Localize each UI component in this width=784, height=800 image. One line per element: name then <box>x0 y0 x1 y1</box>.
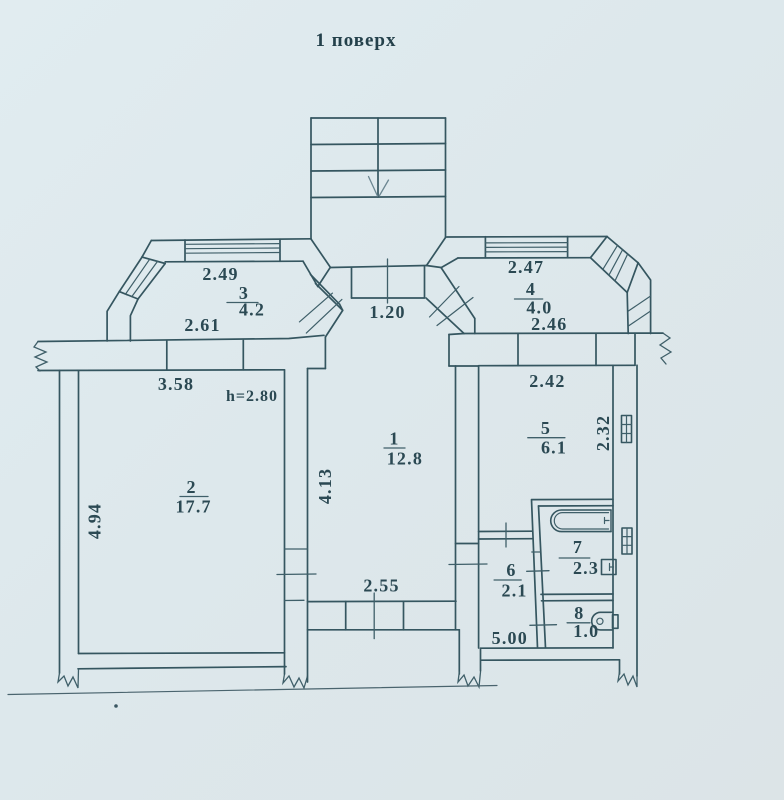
svg-text:4.94: 4.94 <box>85 503 105 539</box>
svg-text:4.2: 4.2 <box>239 300 265 320</box>
svg-text:12.8: 12.8 <box>387 449 423 469</box>
svg-text:6: 6 <box>506 560 516 580</box>
svg-text:4.13: 4.13 <box>315 468 335 504</box>
svg-text:5: 5 <box>541 418 551 438</box>
svg-text:2.49: 2.49 <box>202 264 238 284</box>
svg-text:2.55: 2.55 <box>363 576 399 596</box>
svg-text:2.3: 2.3 <box>573 558 599 578</box>
svg-text:2.47: 2.47 <box>508 257 544 277</box>
svg-text:4: 4 <box>526 279 536 299</box>
svg-text:2.61: 2.61 <box>184 315 220 335</box>
svg-text:7: 7 <box>573 537 583 557</box>
svg-text:1.0: 1.0 <box>573 621 599 641</box>
svg-text:17.7: 17.7 <box>175 497 211 517</box>
svg-text:2: 2 <box>186 477 196 497</box>
svg-text:2.32: 2.32 <box>593 415 613 451</box>
svg-text:1 поверх: 1 поверх <box>316 30 397 51</box>
svg-text:2.46: 2.46 <box>531 314 567 334</box>
svg-text:3.58: 3.58 <box>158 374 194 394</box>
svg-text:5.00: 5.00 <box>492 628 528 648</box>
svg-text:8: 8 <box>574 603 584 623</box>
svg-text:1: 1 <box>389 429 399 449</box>
svg-text:2.42: 2.42 <box>529 371 565 391</box>
svg-text:h=2.80: h=2.80 <box>226 388 278 405</box>
svg-text:1.20: 1.20 <box>369 302 405 322</box>
svg-text:6.1: 6.1 <box>541 438 567 458</box>
svg-text:2.1: 2.1 <box>502 581 528 601</box>
